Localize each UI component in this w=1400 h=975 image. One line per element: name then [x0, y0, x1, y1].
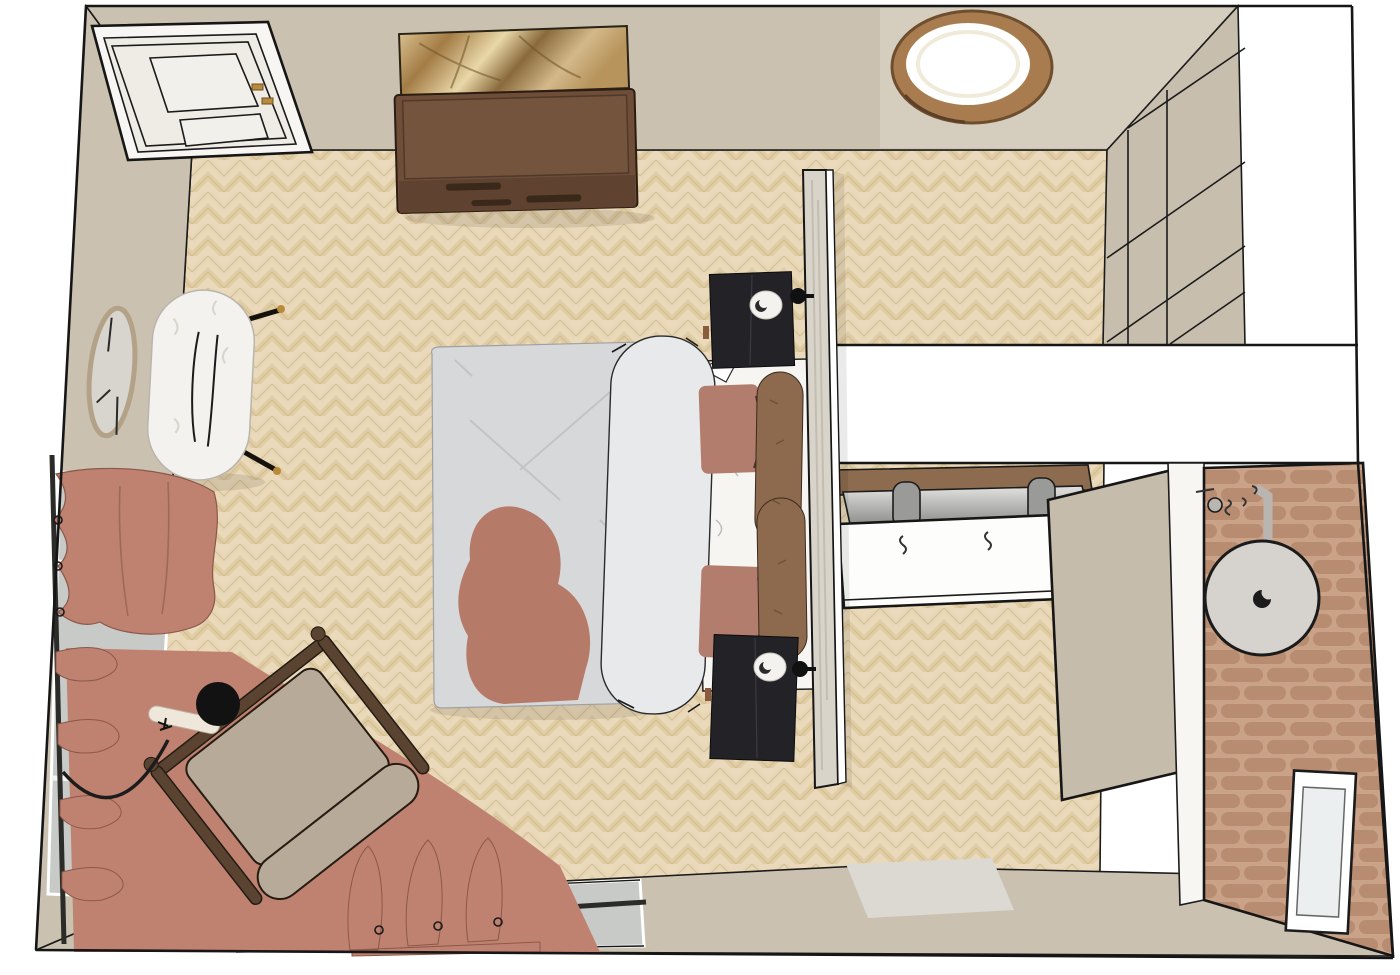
drawer-handle: [471, 199, 511, 206]
lamp-shade: [196, 682, 240, 726]
nightstand-bottom: [705, 635, 798, 762]
shower-niche: [1286, 771, 1356, 934]
shower-divider: [1168, 463, 1204, 905]
bath-mat: [846, 858, 1014, 918]
door-hinge-1: [252, 84, 263, 90]
sliding-panel: [1048, 470, 1188, 800]
wall-art: [399, 26, 629, 96]
nightstand-handle: [705, 688, 711, 701]
drawer-handle: [526, 194, 581, 202]
ceiling-light: [892, 11, 1052, 123]
drawer-handle: [446, 182, 501, 190]
wall-section-cut: [813, 345, 1360, 463]
sink-counter: [838, 514, 1084, 608]
door-hinge-2: [262, 98, 273, 104]
shower: [1168, 463, 1393, 956]
curtain-upper-left: [54, 468, 217, 634]
bedroom-render: [0, 0, 1400, 975]
shower-valve: [1208, 498, 1222, 512]
render-canvas: [0, 0, 1400, 975]
pillow-terracotta-1: [698, 384, 761, 474]
nightstand-handle: [703, 326, 709, 339]
dresser: [395, 89, 655, 228]
nightstand-top: [703, 272, 795, 369]
